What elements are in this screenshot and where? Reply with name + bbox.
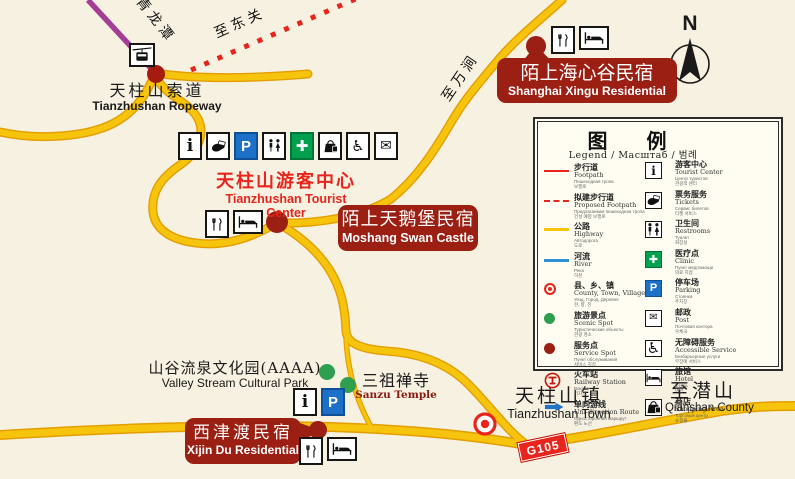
clinic-icon: ✚ (645, 249, 675, 268)
xijin-du-label: 西津渡民宿 Xijin Du Residential (185, 418, 301, 464)
legend-ko-line: 서비스 지점 (574, 362, 617, 367)
legend-en-line: Footpath (574, 172, 614, 179)
legend-en-line: Shopping Area (675, 406, 724, 413)
restaurant-icon (551, 26, 575, 54)
tourist-center-facility-icons: iP✚♿✉ (178, 132, 398, 160)
clinic-icon: ✚ (645, 251, 662, 268)
restaurant-icon (299, 437, 323, 465)
legend-ko-line: 여관 (675, 388, 693, 393)
shanghai-xingu-label: 陌上海心谷民宿 Shanghai Xingu Residential (497, 58, 677, 103)
hotel-icon (233, 210, 263, 234)
legend-entry-text: 游客中心Tourist CenterЦентр туристов관광객 센터 (675, 160, 723, 186)
legend-ru-line: Сервис билетов (675, 206, 709, 211)
legend-entry-text: 票务服务TicketsСервис билетов티켓 서비스 (675, 190, 709, 216)
legend-entry-text: 拟建步行道Proposed FootpathПредлагаемая пешех… (574, 193, 645, 219)
legend-en-line: Highway (574, 231, 603, 238)
legend-entry-text: 服务点Service SpotПункт обслуживания서비스 지점 (574, 341, 617, 367)
legend-entry-service-marker: 服务点Service SpotПункт обслуживания서비스 지점 (544, 341, 644, 367)
parking-icon: P (645, 278, 675, 297)
legend-entry-clinic: ✚医疗点ClinicПункт медпомощи의료 지점 (645, 249, 780, 275)
clinic-icon: ✚ (290, 132, 314, 160)
legend-ko-line: 현, 향, 진 (574, 302, 645, 307)
legend-ko-line: 관광객 센터 (675, 181, 723, 186)
legend-entry-parking: P停车场ParkingСтоянка주차장 (645, 278, 780, 304)
highway-line (544, 222, 574, 231)
route-arrow (544, 400, 574, 412)
legend-entry-text: 火车站Railway StationВокзал기차역 (574, 370, 626, 396)
legend-entry-railway-marker: 火车站Railway StationВокзал기차역 (544, 370, 644, 396)
legend-entry-info: i游客中心Tourist CenterЦентр туристов관광객 센터 (645, 160, 780, 186)
restrooms-icon (262, 132, 286, 160)
legend-en-line: Post (675, 317, 713, 324)
accessible-icon: ♿ (645, 338, 675, 357)
legend-entry-text: 卫生间RestroomsТуалет화장실 (675, 219, 710, 245)
parking-icon: P (234, 132, 258, 160)
county-marker (544, 281, 574, 295)
info-icon: i (293, 388, 317, 416)
legend-ru-line: Предлагаемая пешеходная тропа (574, 209, 645, 214)
restaurant-icon (205, 210, 229, 238)
post-icon: ✉ (645, 308, 675, 327)
legend-ko-line: 쇼핑몰 (675, 418, 724, 423)
legend-entry-accessible: ♿无障碍服务Accessible ServiceБезбарьерные усл… (645, 338, 780, 364)
legend-entry-river-line: 河流RiverРека하천 (544, 252, 644, 278)
scenic-marker (544, 311, 574, 324)
sanzu-temple-label: 三祖禅寺 Sanzu Temple (355, 372, 437, 402)
tianzhushan-town-marker (475, 414, 495, 434)
tickets-icon (206, 132, 230, 160)
legend-en-line: Railway Station (574, 379, 626, 386)
legend-entry-county-marker: 县、乡、镇County, Town, VillageУезд, Город, Д… (544, 281, 644, 307)
ropeway-label: 天柱山索道 Tianzhushan Ropeway (82, 82, 232, 113)
accessible-icon: ♿ (346, 132, 370, 160)
legend-ko-line: 의료 지점 (675, 270, 713, 275)
hotel-icon (645, 369, 662, 386)
legend-en-line: Tourist Center (675, 169, 723, 176)
river-line (544, 252, 574, 262)
legend-en-line: Parking (675, 287, 700, 294)
post-icon: ✉ (374, 132, 398, 160)
legend-en-line: River (574, 261, 592, 268)
parking-icon: P (321, 388, 345, 416)
info-icon: i (178, 132, 202, 160)
legend-entry-scenic-marker: 旅游景点Scenic SpotТуристические объекты관광 명… (544, 311, 644, 337)
legend-entry-footpath-line: 步行道FootpathПешеходная тропа보행로 (544, 163, 644, 189)
proposed-footpath-line (544, 193, 574, 202)
compass-north-label: N (668, 12, 712, 36)
shopping-icon (645, 397, 675, 416)
restrooms-icon (645, 221, 662, 238)
legend-entry-route-arrow: 单向游线Uni-direction RouteОдносторонний мар… (544, 400, 644, 426)
hotel-icon (645, 367, 675, 386)
legend-entry-text: 无障碍服务Accessible ServiceБезбарьерные услу… (675, 338, 736, 364)
tickets-icon (645, 190, 675, 209)
legend-en-line: Tickets (675, 199, 709, 206)
legend-left-column: 步行道FootpathПешеходная тропа보행로拟建步行道Propo… (544, 163, 644, 429)
legend-entry-text: 县、乡、镇County, Town, VillageУезд, Город, Д… (574, 281, 645, 307)
legend-ko-line: 주차장 (675, 299, 700, 304)
shopping-icon (645, 399, 662, 416)
legend-entry-text: 单向游线Uni-direction RouteОдносторонний мар… (574, 400, 639, 426)
valley-park-label: 山谷流泉文化园(AAAA) Valley Stream Cultural Par… (145, 360, 325, 390)
legend-entry-text: 河流RiverРека하천 (574, 252, 592, 278)
legend-entry-text: 商店Shopping AreaТорговый центр쇼핑몰 (675, 397, 724, 423)
legend-en-line: Scenic Spot (574, 320, 623, 327)
legend-entry-text: 医疗点ClinicПункт медпомощи의료 지점 (675, 249, 713, 275)
moshang-facility-icons (205, 210, 263, 238)
legend-ko-line: 하천 (574, 273, 592, 278)
legend-en-line: Proposed Footpath (574, 202, 645, 209)
accessible-icon: ♿ (645, 340, 662, 357)
legend-en-line: County, Town, Village (574, 290, 645, 297)
legend-subtitle: Legend / Масштаб / 범례 (535, 147, 731, 161)
xijin-du-facility-icons (299, 437, 357, 465)
legend-entry-post: ✉邮政PostПочтовая контора우체국 (645, 308, 780, 334)
shanghai-xingu-facility-icons (551, 26, 609, 54)
tianzhushan-tourist-map: N 至青龙潭 至东关 至万涧 天柱山索道 Tianzhushan Ropeway… (0, 0, 795, 479)
legend-entry-proposed-footpath-line: 拟建步行道Proposed FootpathПредлагаемая пешех… (544, 193, 644, 219)
railway-marker (544, 370, 574, 389)
legend-ko-line: 편도 노선 (574, 421, 639, 426)
legend-ko-line: 건설 예정 보행로 (574, 214, 645, 219)
legend-ko-line: 무장애 서비스 (675, 359, 736, 364)
legend-entry-text: 停车场ParkingСтоянка주차장 (675, 278, 700, 304)
legend-entry-shopping: 商店Shopping AreaТорговый центр쇼핑몰 (645, 397, 780, 423)
footpath-line (544, 163, 574, 172)
legend-entry-hotel: 旅馆HotelОтель여관 (645, 367, 780, 393)
legend-ko-line: 기차역 (574, 391, 626, 396)
legend-entry-restrooms: 卫生间RestroomsТуалет화장실 (645, 219, 780, 245)
legend-en-line: Uni-direction Route (574, 409, 639, 416)
valley-park-facility-icons: iP (293, 388, 345, 416)
legend-entry-text: 旅馆HotelОтель여관 (675, 367, 693, 393)
legend-ko-line: 티켓 서비스 (675, 211, 709, 216)
shanghai-xingu-dot (526, 36, 546, 56)
cablecar-icon (129, 43, 155, 67)
legend-ko-line: 보행로 (574, 184, 614, 189)
service-marker (544, 341, 574, 354)
legend-en-line: Clinic (675, 258, 713, 265)
parking-icon: P (645, 280, 662, 297)
legend-en-line: Service Spot (574, 350, 617, 357)
info-icon: i (645, 162, 662, 179)
legend-ko-line: 화장실 (675, 240, 710, 245)
legend-en-line: Hotel (675, 376, 693, 383)
legend-entry-tickets: 票务服务TicketsСервис билетов티켓 서비스 (645, 190, 780, 216)
info-icon: i (645, 160, 675, 179)
legend-ko-line: 도로 (574, 243, 603, 248)
legend-en-line: Restrooms (675, 228, 710, 235)
restrooms-icon (645, 219, 675, 238)
legend-entry-text: 公路HighwayАвтодорога도로 (574, 222, 603, 248)
legend-panel: 图 例 Legend / Масштаб / 범례 步行道FootpathПеш… (533, 117, 783, 371)
legend-entry-highway-line: 公路HighwayАвтодорога도로 (544, 222, 644, 248)
post-icon: ✉ (645, 310, 662, 327)
legend-en-line: Accessible Service (675, 347, 736, 354)
hotel-icon (327, 437, 357, 461)
legend-ru-line: Пункт обслуживания (574, 357, 617, 362)
legend-entry-text: 步行道FootpathПешеходная тропа보행로 (574, 163, 614, 189)
legend-ko-line: 관광 명소 (574, 332, 623, 337)
shopping-icon (318, 132, 342, 160)
legend-entry-text: 旅游景点Scenic SpotТуристические объекты관광 명… (574, 311, 623, 337)
legend-right-column: i游客中心Tourist CenterЦентр туристов관광객 센터票… (645, 160, 780, 426)
legend-ko-line: 우체국 (675, 329, 713, 334)
moshang-swan-castle-label: 陌上天鹅堡民宿 Moshang Swan Castle (338, 205, 478, 251)
legend-entry-text: 邮政PostПочтовая контора우체국 (675, 308, 713, 334)
tickets-icon (645, 192, 662, 209)
hotel-icon (579, 26, 609, 50)
